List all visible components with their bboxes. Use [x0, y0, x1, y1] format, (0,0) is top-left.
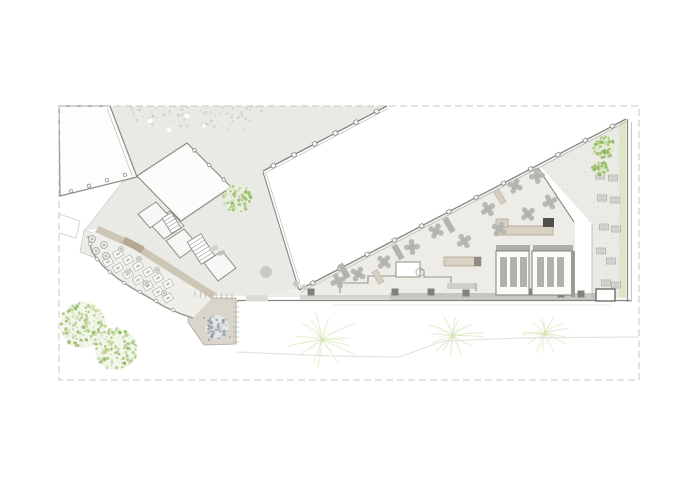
tree-dot — [64, 327, 68, 331]
tree-dot — [228, 208, 230, 210]
planter-tree-dot — [215, 318, 217, 320]
kitchen-wall-cap — [496, 245, 530, 251]
wing-round-table-center — [127, 271, 129, 273]
tree-dot — [105, 349, 108, 352]
cafe-table-center — [103, 244, 105, 246]
wall-posts — [308, 289, 315, 296]
tree-dot — [74, 342, 77, 345]
tree-dot — [120, 359, 122, 361]
tree-dot — [599, 140, 602, 143]
tree-dot — [123, 340, 126, 343]
tree-dot — [230, 203, 232, 205]
tree-dot — [597, 172, 600, 175]
wing-round-table-center — [120, 248, 122, 250]
tree-dot — [598, 153, 600, 155]
tree-dot — [232, 185, 235, 188]
tree-dot — [102, 316, 104, 318]
planter-tree-dot — [207, 328, 210, 331]
gravel-texture — [230, 123, 232, 125]
gravel-texture — [228, 112, 230, 114]
gravel-texture — [158, 111, 159, 112]
cafe-table-center — [91, 238, 93, 240]
tree-dot — [98, 309, 100, 311]
tree-dot — [600, 136, 603, 139]
tree-dot — [597, 167, 599, 169]
planter-tree-dot — [207, 319, 209, 321]
bench — [246, 295, 268, 301]
tree-dot — [99, 321, 102, 324]
gravel-texture — [221, 106, 224, 109]
tree-dot — [103, 331, 106, 334]
gravel-texture — [132, 110, 134, 112]
tree-dot — [79, 313, 81, 315]
building-a-windows — [87, 184, 91, 188]
gravel-texture — [136, 119, 138, 121]
tree-dot — [111, 359, 113, 361]
gravel-texture — [211, 126, 212, 127]
tree-dot — [67, 317, 70, 320]
tree-dot — [126, 356, 128, 358]
kitchen-equipment — [510, 257, 517, 287]
gravel-texture — [179, 121, 180, 122]
wall-posts — [428, 289, 435, 296]
tree-dot — [101, 335, 102, 336]
tree-dot — [105, 338, 107, 340]
tree-dot — [245, 197, 247, 199]
tree-dot — [104, 345, 107, 348]
planter-tree-dot — [208, 325, 211, 328]
tree-dot — [85, 314, 88, 317]
gravel-texture — [260, 110, 263, 113]
planter-tree-dot — [222, 320, 224, 322]
gravel-texture — [192, 121, 194, 123]
gravel-texture — [214, 125, 216, 127]
planter-tree-dot — [215, 329, 217, 331]
planter-tree-dot — [222, 332, 225, 335]
gravel-texture — [153, 124, 154, 125]
tree-dot — [598, 148, 600, 150]
tree-dot — [79, 319, 81, 321]
tree-dot — [62, 312, 65, 315]
tree-dot — [235, 202, 237, 204]
gravel-texture — [130, 107, 133, 110]
tree-dot — [97, 343, 99, 345]
planter-tree-dot — [219, 330, 222, 333]
gravel-texture — [138, 109, 141, 112]
planter-tree-dot — [208, 330, 210, 332]
planter-tree-dot — [217, 323, 220, 326]
tree-dot — [90, 338, 92, 340]
shrub — [302, 285, 307, 290]
wall-posts — [463, 290, 470, 297]
tree-dot — [602, 171, 605, 174]
tree-dot — [95, 348, 97, 350]
terrace-table-with-chairs — [524, 210, 532, 218]
gravel-texture — [170, 120, 172, 122]
gravel-texture — [201, 123, 202, 124]
gravel-texture — [231, 106, 234, 109]
gravel-texture — [241, 112, 243, 114]
tree-dot — [605, 164, 607, 166]
tree-dot — [128, 342, 131, 345]
terrace-table-with-chairs — [460, 237, 468, 245]
tree-dot — [237, 198, 240, 201]
tree-dot — [72, 323, 75, 326]
paving-spot — [167, 128, 171, 132]
kitchen-equipment — [500, 257, 507, 287]
tree-dot — [107, 330, 110, 333]
paving-spot — [202, 124, 206, 128]
gravel-texture — [205, 111, 207, 113]
gravel-texture — [150, 113, 151, 114]
gravel-texture — [185, 124, 188, 127]
tree-dot — [240, 194, 242, 196]
tree-dot — [237, 188, 240, 191]
wall-posts — [392, 289, 399, 296]
tree-dot — [111, 361, 114, 364]
tree-dot — [67, 335, 69, 337]
gravel-texture — [168, 114, 169, 115]
gravel-texture — [226, 128, 229, 131]
tree-dot — [111, 364, 113, 366]
planter-tree-dot — [225, 324, 227, 326]
tree-dot — [80, 317, 82, 319]
tree-dot — [69, 332, 71, 334]
tree-dot — [604, 141, 608, 145]
tree-dot — [596, 141, 598, 143]
tree-dot — [231, 206, 234, 209]
terrace-table-with-chairs — [432, 227, 440, 235]
tree-dot — [226, 202, 228, 204]
tree-dot — [81, 344, 82, 345]
tree-dot — [124, 351, 127, 354]
tree-dot — [69, 322, 71, 324]
tree-dot — [85, 310, 87, 312]
tree-dot — [86, 320, 90, 324]
tree-dot — [134, 354, 136, 356]
tree-dot — [248, 200, 251, 203]
tree-dot — [60, 323, 63, 326]
tree-dot — [85, 338, 88, 341]
tree-dot — [593, 168, 596, 171]
tree-dot — [74, 335, 76, 337]
tree-dot — [230, 195, 232, 197]
tree-dot — [81, 301, 83, 303]
tree-dot — [126, 355, 127, 356]
shrub — [293, 281, 299, 287]
tree-dot — [73, 306, 75, 308]
tree-dot — [223, 202, 226, 205]
tree-dot — [601, 165, 604, 168]
planter-tree-dot — [221, 335, 223, 337]
gravel-texture — [199, 110, 201, 112]
gravel-texture — [225, 113, 227, 115]
floor-plan-page — [0, 0, 700, 495]
gravel-texture — [249, 109, 251, 111]
planter-tree-dot — [225, 318, 228, 321]
tree-dot — [114, 346, 117, 349]
tree-dot — [225, 190, 227, 192]
tree-dot — [67, 341, 71, 345]
terrace-table-with-chairs — [484, 205, 492, 213]
tree-dot — [118, 353, 120, 355]
terrace-table-with-chairs — [380, 258, 388, 266]
tree-dot — [108, 333, 110, 335]
tree-dot — [100, 313, 102, 315]
tree-dot — [105, 366, 108, 369]
planter-tree-dot — [209, 317, 211, 319]
tree-dot — [244, 207, 248, 211]
tree-dot — [134, 348, 136, 350]
wing-round-table-center — [138, 258, 140, 260]
gravel-texture — [197, 112, 199, 114]
planter-tree-dot — [210, 330, 213, 333]
tree-dot — [248, 192, 249, 193]
tree-dot — [602, 161, 604, 163]
wing-round-table-center — [156, 269, 158, 271]
tree-dot — [75, 338, 77, 340]
low-garden-wall — [59, 214, 80, 238]
tree-dot — [240, 210, 242, 212]
tree-dot — [245, 187, 247, 189]
tree-dot — [97, 328, 100, 331]
gravel-texture — [155, 107, 157, 109]
tree-dot — [115, 327, 118, 330]
bar-dark-unit — [543, 218, 554, 227]
tree-dot — [237, 207, 239, 209]
gravel-texture — [151, 111, 152, 112]
shrub — [260, 266, 272, 278]
planter-tree-dot — [219, 337, 221, 339]
gravel-texture — [181, 114, 184, 117]
tree-dot — [242, 195, 245, 198]
building-a-windows — [123, 173, 127, 177]
tree-dot — [244, 190, 247, 193]
tree-dot — [605, 166, 608, 169]
terrace-table-with-chairs — [408, 243, 416, 251]
gravel-texture — [163, 113, 166, 116]
tree-dot — [65, 333, 68, 336]
tree-dot — [122, 357, 125, 360]
tree-dot — [64, 331, 66, 333]
tree-dot — [128, 358, 130, 360]
planter-tree-dot — [227, 330, 229, 332]
tree-dot — [63, 333, 65, 335]
wing-round-table-center — [163, 292, 165, 294]
deco-dot — [208, 339, 210, 341]
building-a-windows — [105, 178, 109, 182]
tree-dot — [114, 331, 116, 333]
tree-dot — [68, 309, 71, 312]
tree-dot — [601, 156, 604, 159]
tree-dot — [106, 340, 109, 343]
tree-dot — [92, 331, 95, 334]
kitchen-equipment — [547, 257, 554, 287]
gravel-texture — [218, 121, 219, 122]
tree-dot — [110, 354, 111, 355]
gravel-texture — [243, 129, 244, 130]
tree-dot — [85, 325, 88, 328]
tree-dot — [72, 336, 74, 338]
tree-dot — [91, 307, 94, 310]
tree-dot — [118, 330, 121, 333]
gravel-texture — [207, 108, 208, 109]
buffet-counter-cap — [474, 257, 481, 266]
building-a-windows — [69, 189, 73, 193]
tree-dot — [103, 349, 104, 350]
kitchen-east-wall — [571, 251, 575, 297]
site-floor-plan — [0, 0, 700, 495]
gravel-texture — [156, 117, 158, 119]
gravel-texture — [231, 114, 233, 116]
tree-dot — [104, 359, 107, 362]
tree-dot — [248, 193, 251, 196]
hedge-band — [619, 120, 626, 298]
tree-dot — [73, 313, 75, 315]
tree-dot — [608, 138, 609, 139]
south-wall-band-west — [300, 295, 390, 300]
planter-tree-dot — [210, 321, 213, 324]
gravel-texture — [169, 110, 172, 113]
kitchen-equipment — [537, 257, 544, 287]
tree-dot — [78, 331, 81, 334]
tree-dot — [65, 315, 67, 317]
tree-dot — [85, 317, 88, 320]
gravel-texture — [156, 121, 157, 122]
terrace-table-with-chairs — [511, 182, 519, 190]
tree-dot — [603, 153, 605, 155]
paving-spot — [148, 119, 153, 124]
tree-dot — [101, 344, 103, 346]
planter-tree-dot — [210, 335, 213, 338]
tree-dot — [129, 360, 131, 362]
tree-dot — [114, 351, 117, 354]
tree-dot — [599, 145, 602, 148]
tree-dot — [99, 326, 101, 328]
tree-dot — [593, 146, 596, 149]
deco-dot — [229, 336, 231, 338]
gravel-texture — [209, 111, 212, 114]
tree-dot — [71, 309, 73, 311]
tree-dot — [71, 304, 73, 306]
tree-dot — [122, 336, 124, 338]
tree-dot — [121, 366, 123, 368]
gravel-texture — [180, 108, 183, 111]
kitchen-wall-cap — [533, 245, 573, 251]
tree-dot — [87, 304, 90, 307]
gravel-texture — [214, 115, 216, 117]
wing-round-table-center — [145, 282, 147, 284]
tree-dot — [606, 169, 609, 172]
gravel-texture — [241, 127, 243, 129]
gravel-texture — [133, 114, 135, 116]
terrace-table-with-chairs — [354, 270, 362, 278]
tree-dot — [93, 314, 96, 317]
gravel-texture — [177, 114, 180, 117]
planter-tree-dot — [211, 315, 214, 318]
tree-dot — [127, 343, 129, 345]
tree-dot — [104, 325, 107, 328]
tree-dot — [67, 312, 69, 314]
tree-dot — [130, 358, 133, 361]
tree-dot — [239, 202, 241, 204]
gravel-texture — [219, 112, 221, 114]
tree-dot — [223, 193, 226, 196]
tree-dot — [100, 359, 103, 362]
tree-dot — [74, 318, 76, 320]
cafe-table-center — [105, 255, 107, 257]
tree-dot — [86, 328, 89, 331]
tree-dot — [236, 190, 238, 192]
gravel-texture — [237, 117, 239, 119]
tree-dot — [117, 348, 120, 351]
tree-dot — [125, 333, 128, 336]
tree-dot — [92, 343, 94, 345]
service-counter-low — [447, 283, 475, 289]
tree-dot — [232, 189, 234, 191]
kitchen-equipment — [520, 257, 527, 287]
gravel-texture — [232, 120, 235, 123]
tree-dot — [97, 357, 100, 360]
gravel-texture — [136, 109, 138, 111]
tree-dot — [82, 340, 84, 342]
deco-dot — [203, 317, 205, 319]
tree-dot — [94, 309, 97, 312]
gravel-texture — [245, 107, 247, 109]
tree-dot — [612, 143, 613, 144]
tree-dot — [128, 347, 131, 350]
tree-dot — [102, 351, 106, 355]
tree-dot — [129, 362, 131, 364]
gravel-texture — [222, 127, 224, 129]
gravel-texture — [210, 119, 213, 122]
gravel-texture — [183, 118, 186, 121]
tree-dot — [99, 342, 101, 344]
tree-dot — [229, 190, 231, 192]
tree-dot — [106, 336, 108, 338]
tree-dot — [238, 195, 240, 197]
gravel-texture — [206, 123, 208, 125]
cafe-table-center — [95, 250, 97, 252]
tree-dot — [599, 163, 601, 165]
gravel-texture — [241, 115, 243, 117]
tree-dot — [603, 137, 605, 139]
tree-dot — [608, 140, 612, 144]
tree-dot — [81, 325, 85, 329]
tree-dot — [88, 311, 90, 313]
garden-path — [237, 337, 639, 357]
terrace-table-with-chairs — [495, 225, 503, 233]
tree-dot — [244, 205, 246, 207]
tree-dot — [84, 307, 86, 309]
wall-posts — [578, 291, 585, 298]
tree-dot — [115, 366, 118, 369]
gravel-texture — [203, 113, 205, 115]
tree-dot — [132, 339, 135, 342]
tree-dot — [76, 316, 78, 318]
tree-dot — [608, 155, 611, 158]
tree-dot — [93, 320, 95, 322]
tree-dot — [232, 194, 234, 196]
tree-dot — [74, 321, 77, 324]
gravel-texture — [142, 115, 144, 117]
gravel-texture — [179, 124, 182, 127]
tree-dot — [607, 148, 609, 150]
planter-tree-dot — [217, 337, 219, 339]
tree-dot — [111, 331, 114, 334]
tree-dot — [593, 150, 596, 153]
tree-dot — [608, 136, 609, 137]
